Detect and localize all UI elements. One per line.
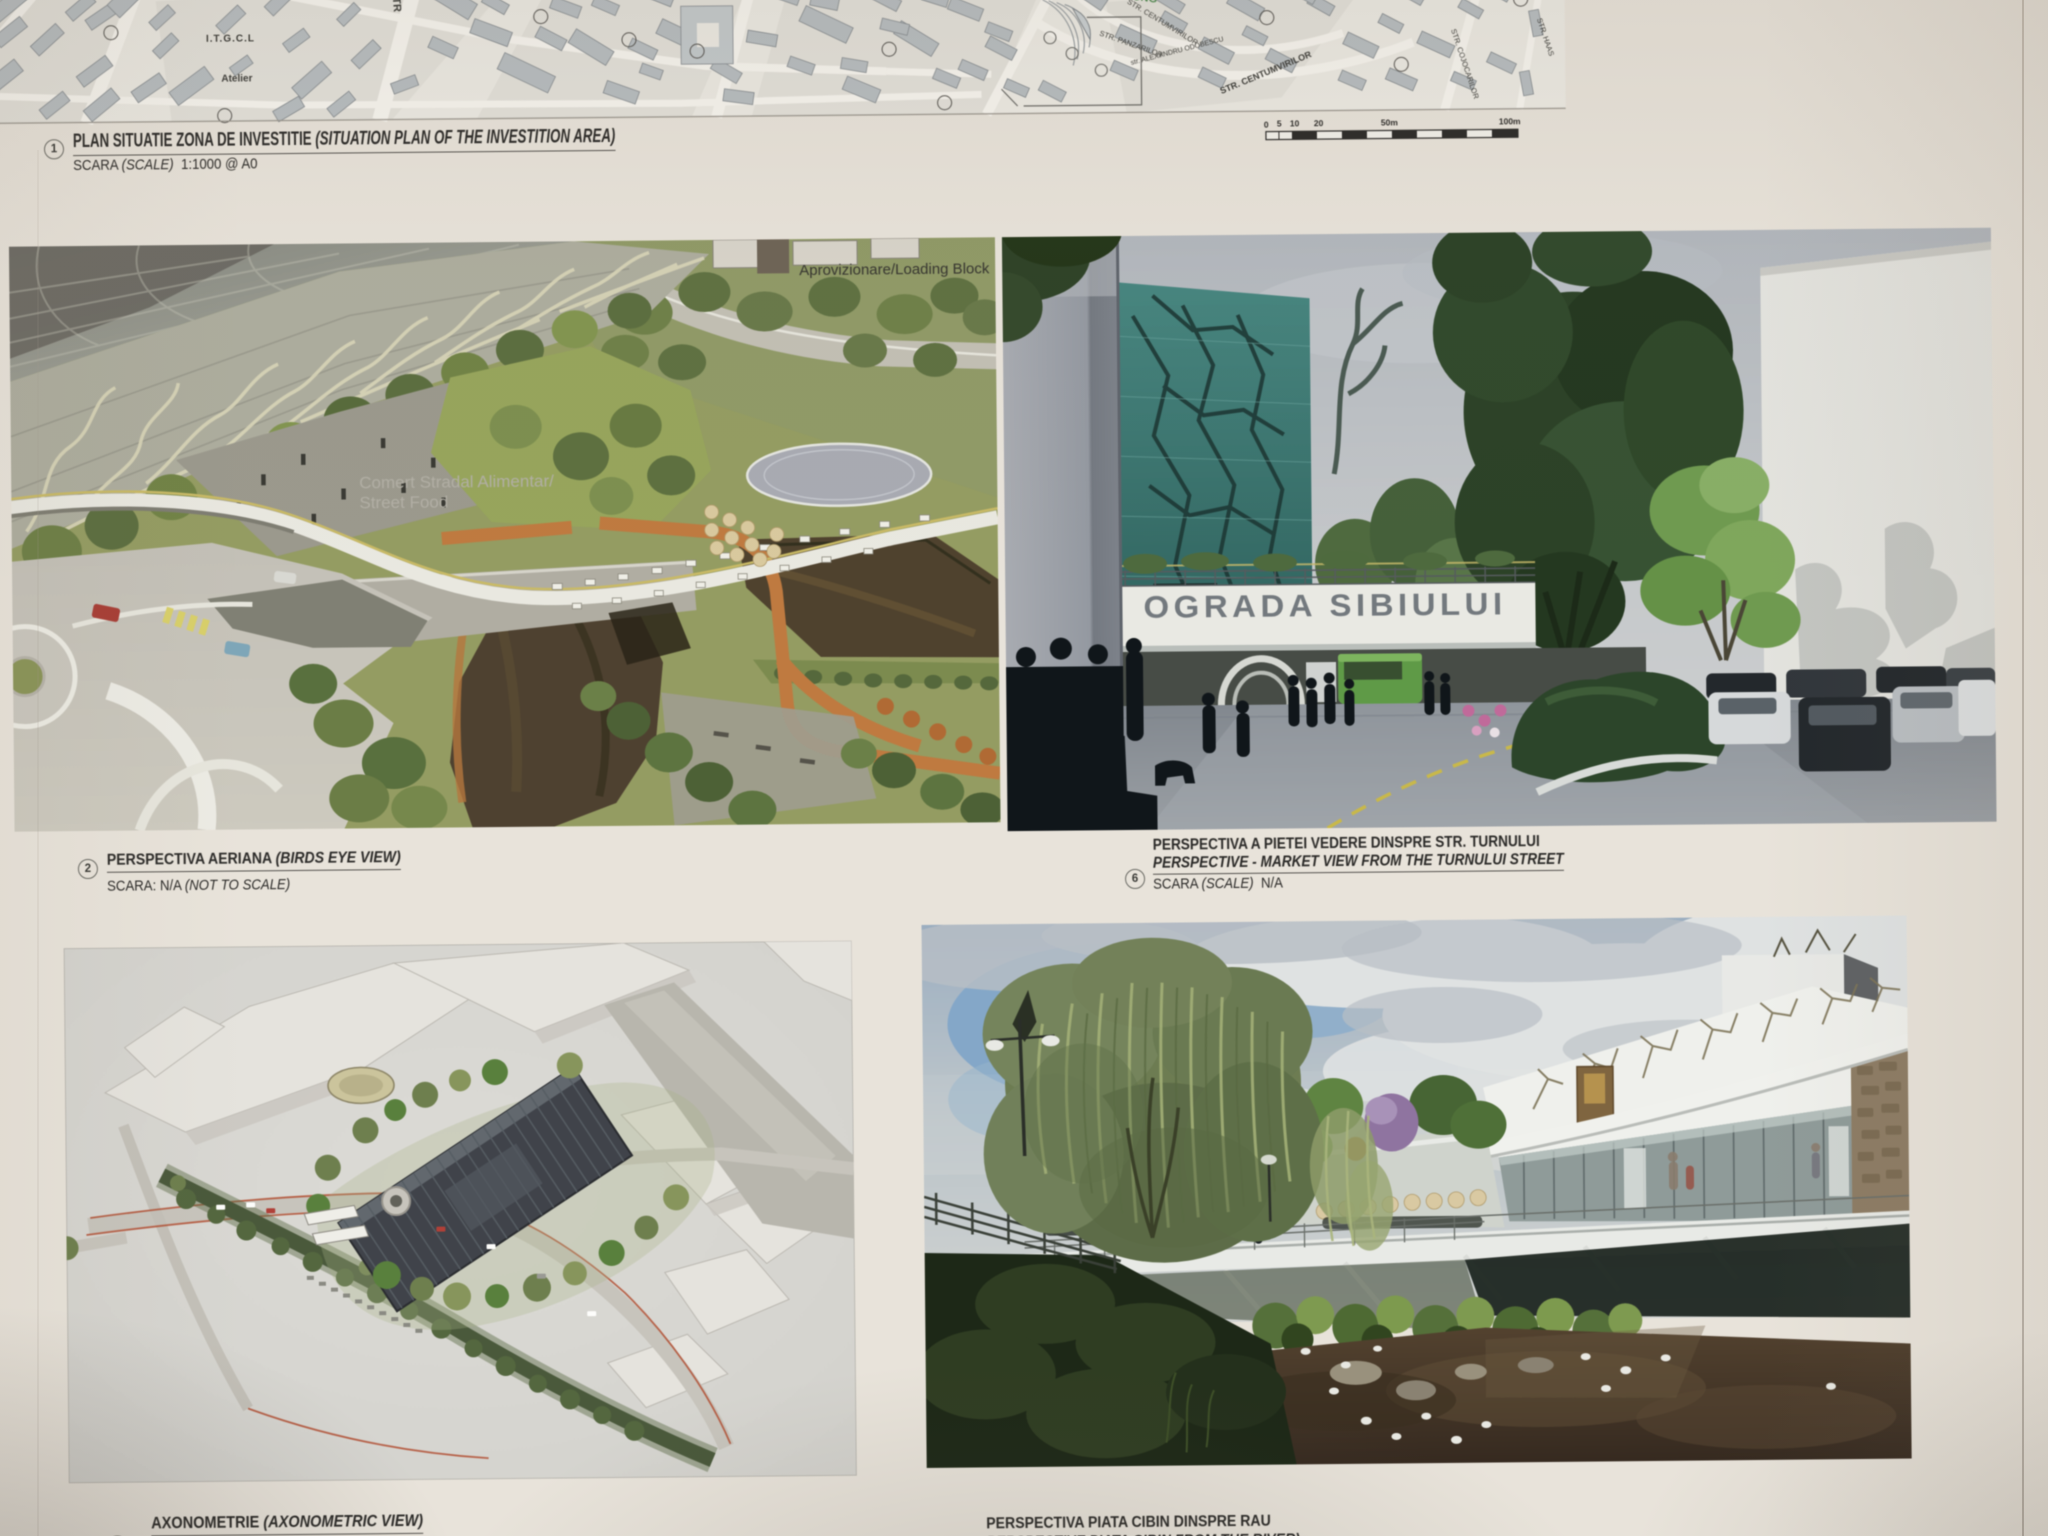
svg-text:OGRADA SIBIULUI: OGRADA SIBIULUI: [1143, 586, 1506, 625]
svg-text:5: 5: [1277, 118, 1282, 128]
svg-text:50m: 50m: [1381, 117, 1399, 127]
svg-text:0: 0: [1264, 120, 1269, 130]
svg-text:Aprovizionare/Loading Block: Aprovizionare/Loading Block: [799, 260, 990, 279]
svg-text:Atelier: Atelier: [221, 73, 252, 84]
svg-text:100m: 100m: [1499, 116, 1521, 126]
svg-text:20: 20: [1314, 118, 1324, 128]
svg-text:I.T.G.C.L: I.T.G.C.L: [206, 33, 255, 44]
svg-text:Street Food: Street Food: [359, 493, 448, 513]
svg-text:STR: STR: [389, 0, 403, 13]
svg-text:10: 10: [1290, 118, 1300, 128]
svg-text:Comert Stradal Alimentar/: Comert Stradal Alimentar/: [359, 471, 554, 492]
